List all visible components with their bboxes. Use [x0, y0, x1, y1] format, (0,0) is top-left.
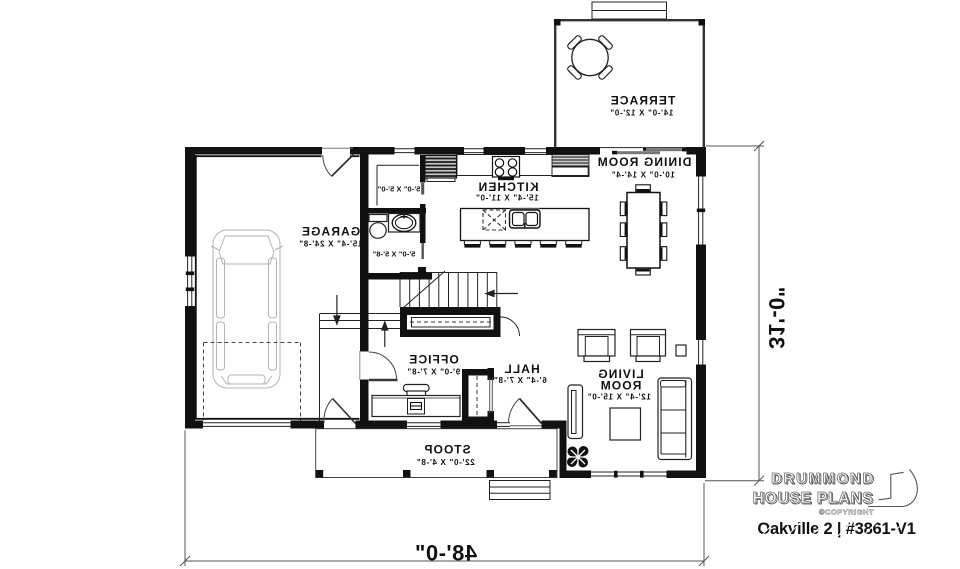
svg-text:Oakville 2 | #3861-V1: Oakville 2 | #3861-V1	[757, 520, 915, 538]
svg-text:14'-0" X 12'-0": 14'-0" X 12'-0"	[610, 109, 674, 118]
svg-text:OFFICE: OFFICE	[408, 353, 459, 367]
svg-text:6'-4" X 7'-8": 6'-4" X 7'-8"	[493, 376, 546, 385]
svg-text:15'-4" X 24'-8": 15'-4" X 24'-8"	[299, 240, 363, 249]
svg-text:12'-4" X 15'-0": 12'-4" X 15'-0"	[587, 393, 651, 402]
svg-text:9'-0" X 7'-8": 9'-0" X 7'-8"	[407, 368, 460, 377]
svg-text:GARAGE: GARAGE	[301, 225, 360, 239]
svg-text:DINING ROOM: DINING ROOM	[597, 155, 692, 169]
svg-text:31'-0": 31'-0"	[764, 286, 789, 349]
svg-text:22'-0" X 4'-8": 22'-0" X 4'-8"	[416, 458, 475, 467]
svg-text:10'-0" X 14'-4": 10'-0" X 14'-4"	[611, 171, 675, 180]
svg-text:48'-0": 48'-0"	[414, 541, 477, 566]
svg-text:DRUMMOND: DRUMMOND	[771, 471, 875, 487]
svg-text:HALL: HALL	[503, 362, 539, 376]
svg-text:KITCHEN: KITCHEN	[477, 180, 538, 194]
svg-text:ROOM: ROOM	[600, 379, 642, 393]
svg-text:©COPYRIGHT: ©COPYRIGHT	[819, 508, 874, 517]
svg-text:15'-4" X 11'-0": 15'-4" X 11'-0"	[475, 194, 538, 203]
svg-text:5'-0" X 5'-8": 5'-0" X 5'-8"	[372, 250, 415, 259]
svg-text:STOOP: STOOP	[423, 443, 470, 457]
svg-text:TERRACE: TERRACE	[610, 94, 676, 108]
svg-text:HOUSE PLANS: HOUSE PLANS	[753, 490, 874, 507]
svg-text:5'-0" X 5'-0": 5'-0" X 5'-0"	[377, 185, 420, 194]
